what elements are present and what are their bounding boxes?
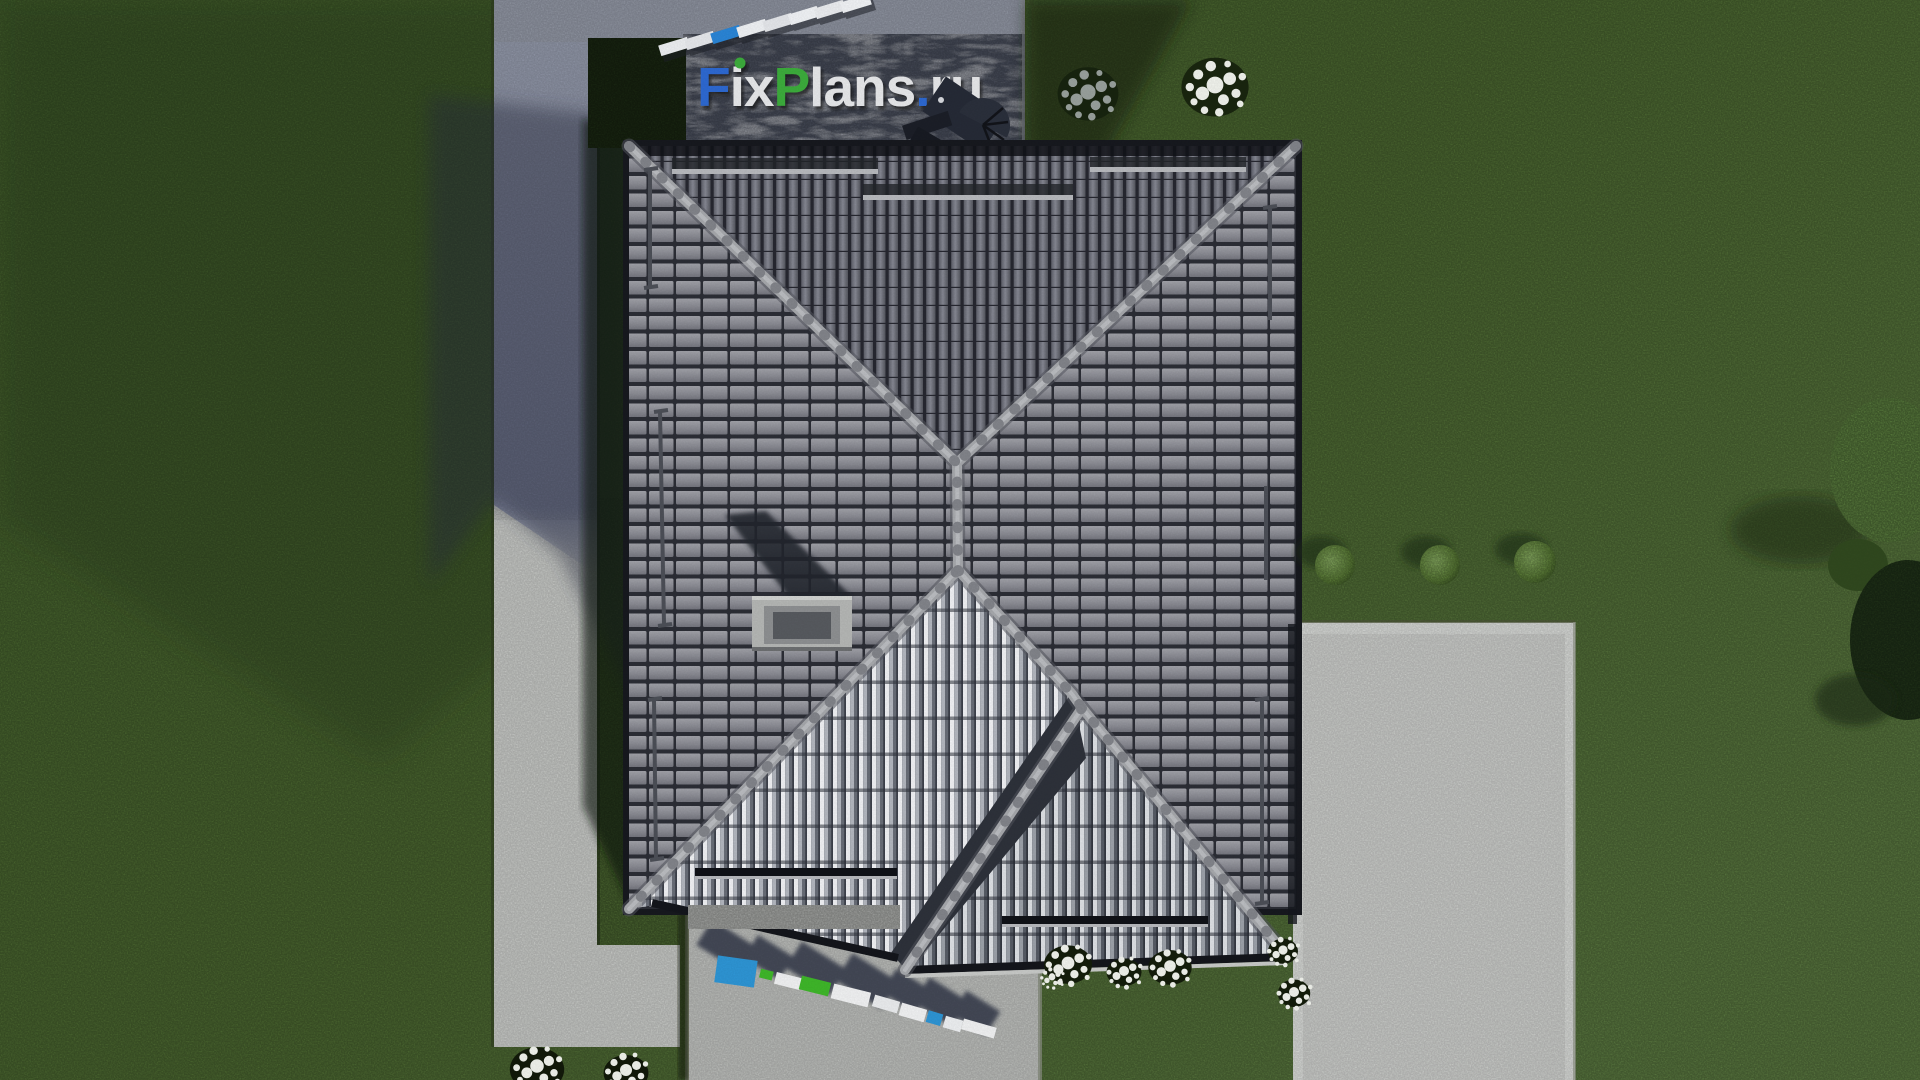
render-grain xyxy=(0,0,1920,1080)
render-viewport: FixPlans.ru xyxy=(0,0,1920,1080)
site-plan-render: FixPlans.ru xyxy=(0,0,1920,1080)
